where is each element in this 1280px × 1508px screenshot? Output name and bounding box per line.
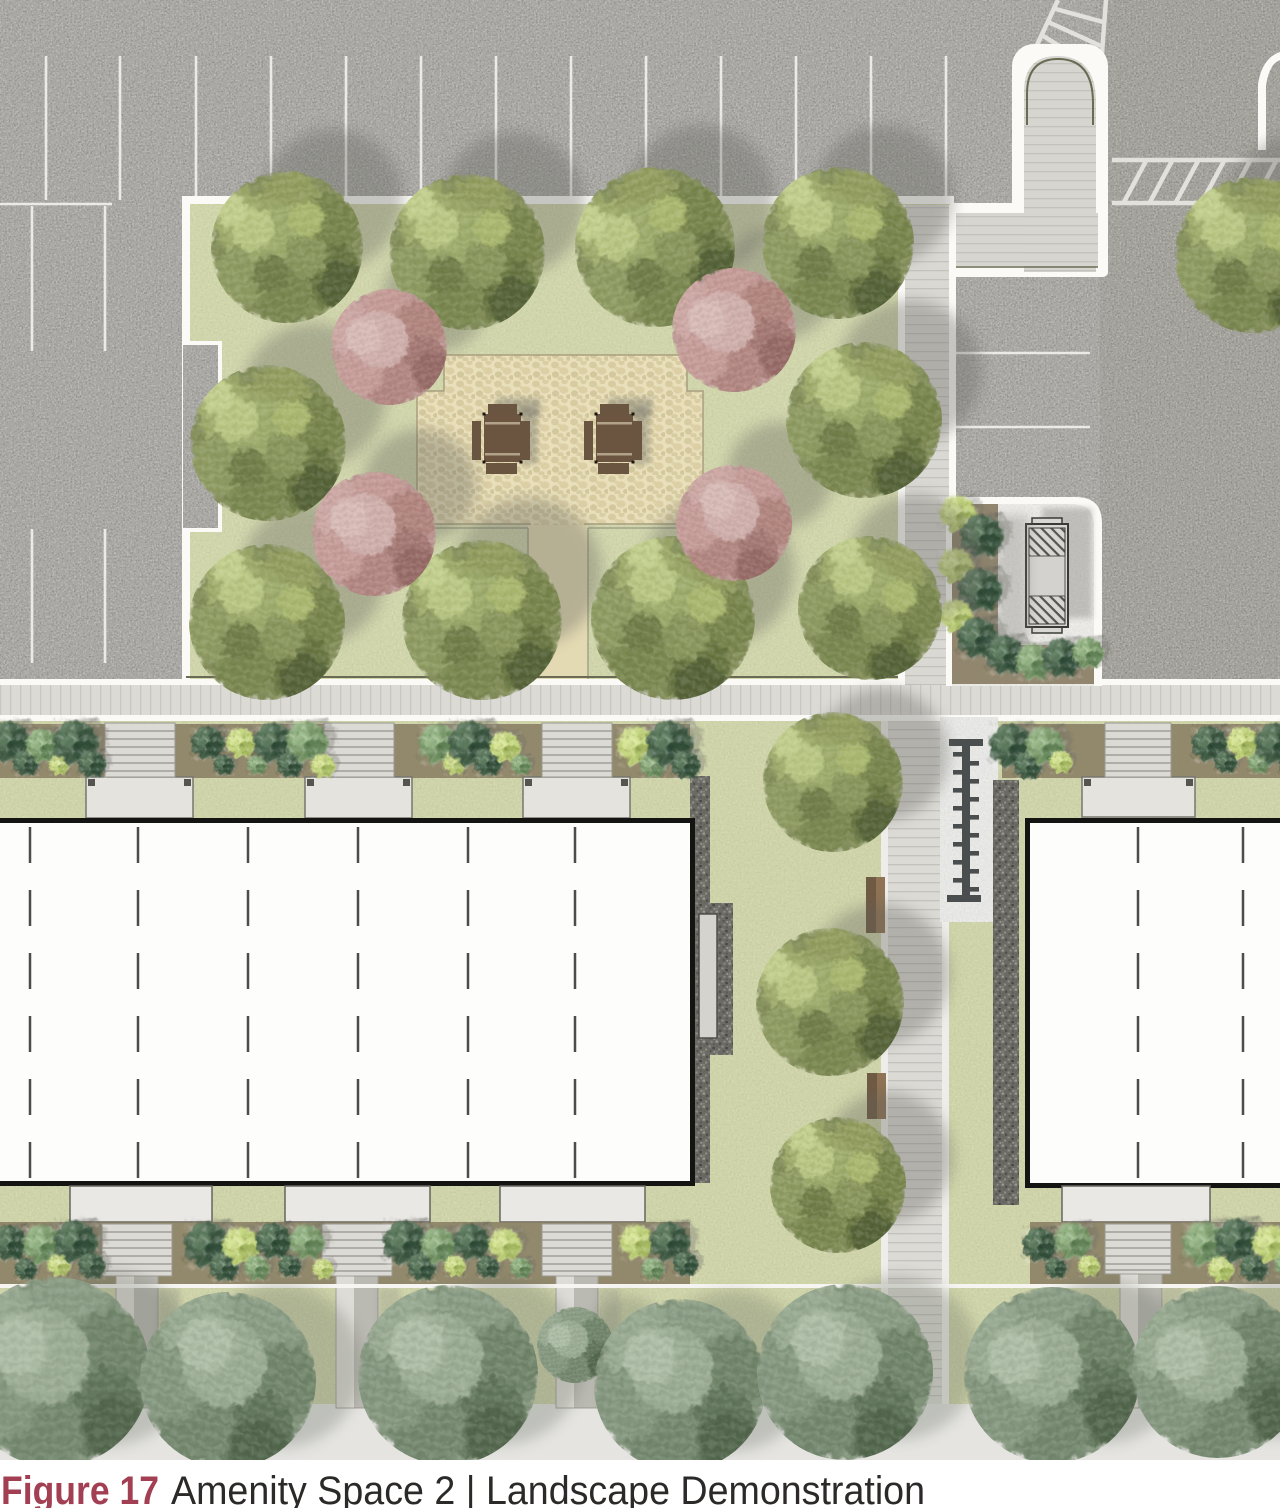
- svg-text:Amenity Space 2 | Landscape De: Amenity Space 2 | Landscape Demonstratio…: [171, 1469, 925, 1508]
- svg-text:Figure 17: Figure 17: [1, 1469, 159, 1508]
